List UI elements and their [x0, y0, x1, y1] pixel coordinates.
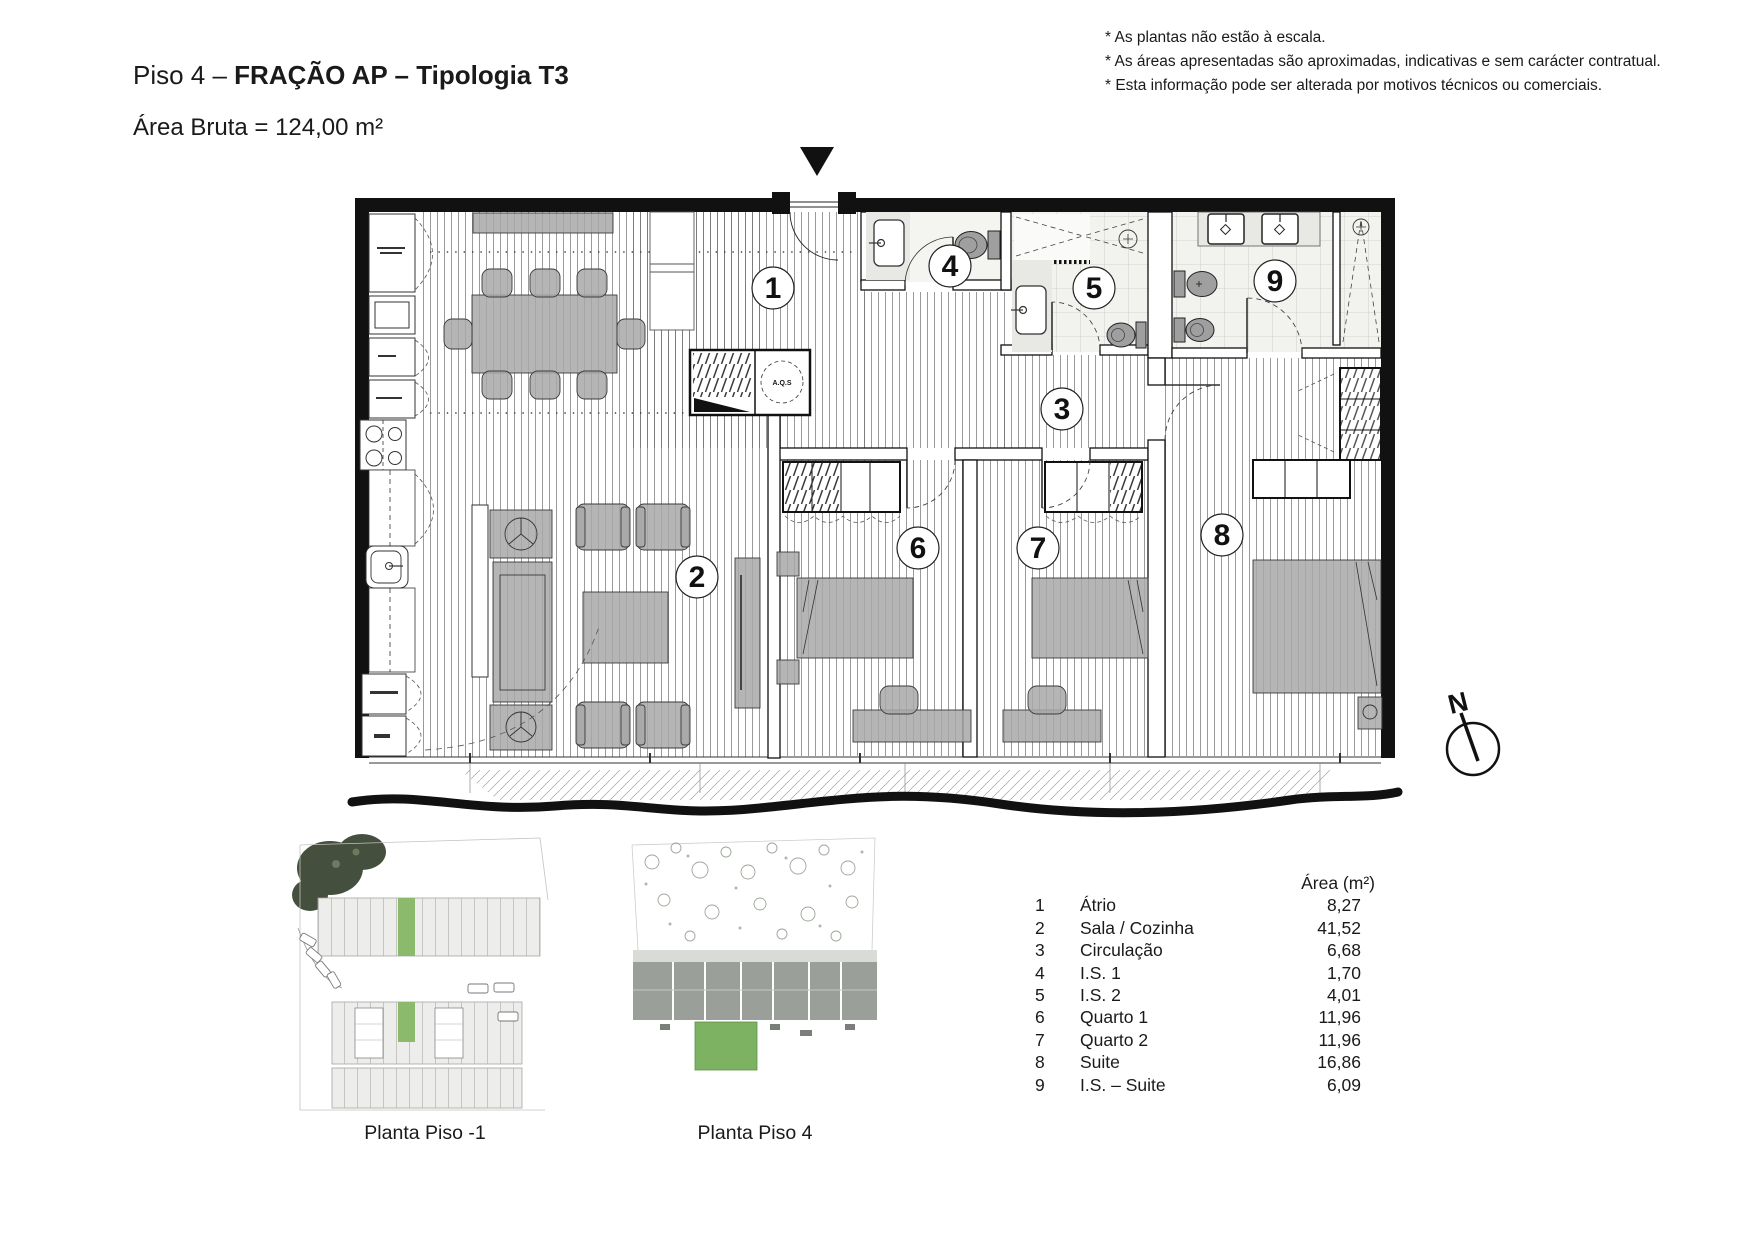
legend-row-num: 4	[1035, 962, 1080, 984]
sofa-back-board	[472, 505, 488, 677]
svg-text:8: 8	[1214, 519, 1231, 552]
entry-cabinet	[650, 212, 694, 330]
legend-row-num: 9	[1035, 1074, 1080, 1096]
legend-row-name: Sala / Cozinha	[1080, 917, 1275, 939]
legend-row-name: Circulação	[1080, 939, 1275, 961]
legend-row-name: I.S. – Suite	[1080, 1074, 1275, 1096]
legend-row-area: 8,27	[1275, 894, 1375, 916]
sideboard	[473, 213, 613, 233]
legend-row-area: 4,01	[1275, 984, 1375, 1006]
floorplan-sheet: Piso 4 – FRAÇÃO AP – Tipologia T3 Área B…	[0, 0, 1755, 1241]
legend-row-num: 8	[1035, 1051, 1080, 1073]
legend-area-header: Área (m²)	[1275, 872, 1375, 894]
desk	[1003, 710, 1101, 742]
room-label-4: 4	[929, 245, 971, 287]
svg-text:4: 4	[942, 250, 959, 283]
desk-chair	[880, 686, 918, 714]
room-label-8: 8	[1201, 514, 1243, 556]
room-label-3: 3	[1041, 388, 1083, 430]
svg-text:1: 1	[765, 272, 782, 305]
legend-row-name: Quarto 1	[1080, 1006, 1275, 1028]
dining-table	[472, 295, 617, 373]
svg-text:3: 3	[1054, 393, 1071, 426]
legend-row-name: I.S. 1	[1080, 962, 1275, 984]
room-label-1: 1	[752, 267, 794, 309]
legend-row-area: 11,96	[1275, 1006, 1375, 1028]
svg-text:9: 9	[1267, 265, 1284, 298]
bed	[1253, 560, 1381, 693]
aqs-closet: A.Q.S	[690, 350, 810, 415]
balcony	[352, 753, 1398, 813]
room-label-6: 6	[897, 527, 939, 569]
floorplan-drawing: A.Q.S	[0, 0, 1755, 1241]
legend-row-name: Suite	[1080, 1051, 1275, 1073]
caption-planta-piso-minus1: Planta Piso -1	[364, 1122, 485, 1145]
legend-row-name: Átrio	[1080, 894, 1275, 916]
room-label-5: 5	[1073, 267, 1115, 309]
legend-row-name: I.S. 2	[1080, 984, 1275, 1006]
legend-row-area: 41,52	[1275, 917, 1375, 939]
svg-text:7: 7	[1030, 532, 1047, 565]
room-label-9: 9	[1254, 260, 1296, 302]
legend-row-num: 7	[1035, 1029, 1080, 1051]
bed	[797, 578, 913, 658]
desk-chair	[1028, 686, 1066, 714]
north-label: N	[1445, 686, 1471, 720]
legend-row-area: 16,86	[1275, 1051, 1375, 1073]
entry-arrow-icon	[800, 147, 834, 176]
room-label-7: 7	[1017, 527, 1059, 569]
legend-row-area: 11,96	[1275, 1029, 1375, 1051]
bed	[1032, 578, 1148, 658]
legend-row-area: 6,68	[1275, 939, 1375, 961]
svg-text:2: 2	[689, 561, 706, 594]
aqs-label: A.Q.S	[772, 380, 791, 387]
legend-row-num: 2	[1035, 917, 1080, 939]
legend-row-num: 3	[1035, 939, 1080, 961]
desk	[853, 710, 971, 742]
thumbnail-piso-4	[632, 838, 877, 1070]
svg-text:5: 5	[1086, 272, 1103, 305]
legend-row-name: Quarto 2	[1080, 1029, 1275, 1051]
kitchen-sink-icon	[366, 546, 408, 588]
tv-board	[735, 558, 760, 708]
legend-row-num: 1	[1035, 894, 1080, 916]
legend-row-area: 1,70	[1275, 962, 1375, 984]
svg-text:6: 6	[910, 532, 927, 565]
caption-planta-piso-4: Planta Piso 4	[698, 1122, 813, 1145]
legend-row-num: 6	[1035, 1006, 1080, 1028]
area-legend-table: Área (m²) 1 Átrio 8,27 2 Sala / Cozinha …	[1035, 872, 1375, 1096]
legend-row-area: 6,09	[1275, 1074, 1375, 1096]
legend-row-num: 5	[1035, 984, 1080, 1006]
room-label-2: 2	[676, 556, 718, 598]
coffee-table	[583, 592, 668, 663]
thumbnail-piso-minus1	[292, 834, 548, 1110]
north-arrow: N	[1445, 686, 1499, 775]
